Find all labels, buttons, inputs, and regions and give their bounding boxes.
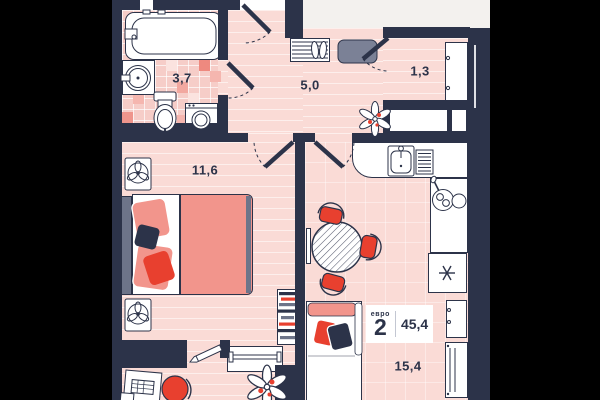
total-area: 45,4 <box>401 316 428 332</box>
dish-rack <box>416 150 433 174</box>
apartment-type-badge: евро 2 45,4 <box>366 305 433 343</box>
room-area-label-hallway: 5,0 <box>300 78 319 93</box>
books <box>278 292 295 339</box>
plant-icon <box>358 102 392 137</box>
desk <box>120 370 162 400</box>
kitchen-sink <box>388 146 414 176</box>
console-bench-detail <box>229 352 281 362</box>
bathroom-door <box>228 63 253 98</box>
dining-chair <box>317 272 347 298</box>
room-area-label-bathroom: 3,7 <box>172 71 191 86</box>
stove <box>430 175 466 210</box>
cabinet-handles <box>448 309 451 324</box>
room-area-label-closet: 1,3 <box>410 64 429 79</box>
bedroom-door <box>254 142 293 167</box>
apartment-type: евро 2 <box>371 311 390 338</box>
badge-divider <box>395 311 396 337</box>
fan-icon <box>125 158 151 190</box>
bathtub-detail <box>125 10 216 54</box>
radiator-detail <box>447 345 455 395</box>
entrance-door <box>243 5 270 43</box>
fan-icon <box>125 299 151 331</box>
living-door <box>315 142 354 167</box>
floorplan-details <box>112 0 490 400</box>
bed-pillows <box>131 197 176 291</box>
plant-icon <box>246 365 288 400</box>
snowflake-icon <box>439 266 455 280</box>
room-count: 2 <box>374 318 387 338</box>
wardrobe-handles <box>446 56 449 89</box>
washbasin <box>121 66 151 91</box>
apartment-floorplan: 3,7 5,0 1,3 11,6 15,4 евро 2 45,4 <box>112 0 490 400</box>
room-area-label-bedroom: 11,6 <box>192 163 218 178</box>
toilet <box>154 92 176 132</box>
floorplan-canvas: 3,7 5,0 1,3 11,6 15,4 евро 2 45,4 <box>0 0 600 400</box>
dining-chair <box>359 233 383 262</box>
sofa-detail <box>308 303 362 356</box>
desk-chair <box>162 376 191 400</box>
pencil-icon <box>189 345 222 365</box>
washing-machine-detail <box>186 104 217 129</box>
room-area-label-living: 15,4 <box>395 359 422 374</box>
dining-table <box>312 222 362 272</box>
